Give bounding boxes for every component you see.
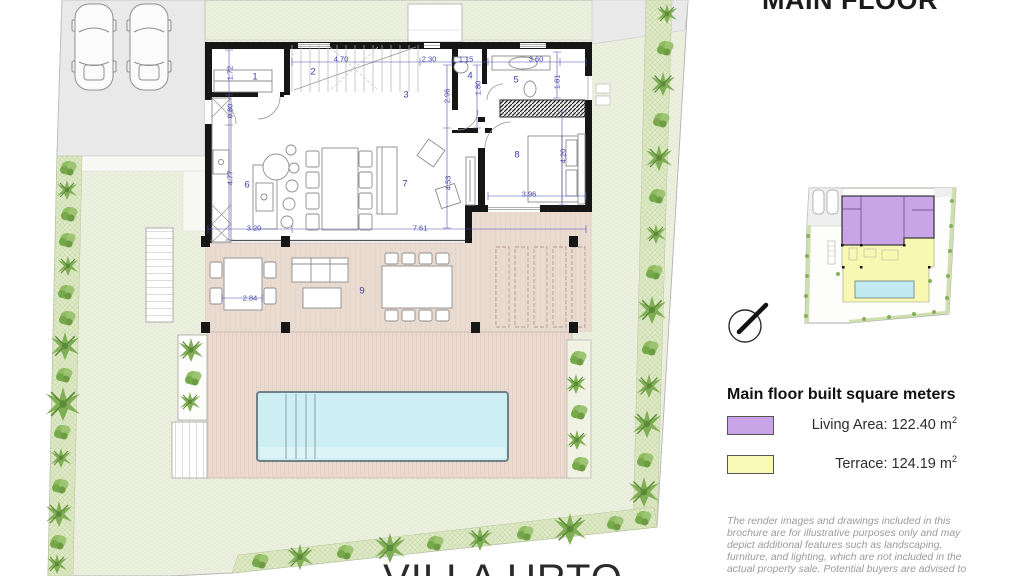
deck-stairs [172, 422, 207, 478]
legend-heading: Main floor built square meters [727, 386, 959, 404]
disclaimer-text: The render images and drawings included … [727, 516, 969, 576]
legend-label-terrace: Terrace: 124.19 m2 [835, 454, 957, 472]
dimension-label: 4.20 [559, 149, 568, 164]
dimension-label: 1.80 [474, 81, 483, 96]
legend-row-terrace: Terrace: 124.19 m2 [727, 453, 959, 482]
room-number: 4 [467, 71, 472, 82]
dimension-label: 1.81 [553, 75, 562, 90]
dimension-label: 3.60 [529, 55, 544, 64]
dimension-label: 2.96 [443, 89, 452, 104]
dimension-label: 1.72 [226, 66, 235, 81]
dimension-label: 3.96 [522, 190, 537, 199]
mini-plan [794, 186, 966, 331]
legend-swatch-living [727, 416, 774, 435]
floor-plan: 1 2 3 4 5 6 7 8 9 1.72 4.70 2.30 1.15 3.… [0, 0, 724, 576]
swimming-pool [257, 392, 508, 461]
room-number: 9 [359, 286, 364, 297]
external-stairs [146, 228, 173, 322]
car-icon [72, 4, 116, 90]
dimension-label: 3.20 [247, 224, 262, 233]
legend: Main floor built square meters Living Ar… [727, 386, 959, 482]
mini-living-highlight [842, 196, 934, 245]
legend-label-living: Living Area: 122.40 m2 [812, 415, 957, 433]
compass-icon [722, 298, 774, 352]
house [205, 4, 610, 243]
page-title: MAIN FLOOR [724, 0, 976, 16]
dimension-label: 2.84 [243, 294, 258, 303]
room-number: 3 [403, 90, 408, 101]
dimension-label: 1.15 [459, 55, 474, 64]
legend-row-living: Living Area: 122.40 m2 [727, 414, 959, 443]
room-number: 8 [514, 150, 519, 161]
brochure-page: 1 2 3 4 5 6 7 8 9 1.72 4.70 2.30 1.15 3.… [0, 0, 1024, 576]
room-number: 6 [244, 180, 249, 191]
dimension-label: 7.61 [413, 224, 428, 233]
villa-name: VILLA URTO [303, 557, 703, 576]
dimension-label: 4.53 [444, 176, 453, 191]
dimension-label: 4.70 [334, 55, 349, 64]
dimension-label: 0.80 [226, 104, 235, 119]
legend-swatch-terrace [727, 455, 774, 474]
room-number: 1 [252, 72, 257, 83]
room-number: 5 [513, 75, 518, 86]
car-icon [127, 4, 171, 90]
dimension-label: 4.77 [226, 171, 235, 186]
room-number: 7 [402, 179, 407, 190]
room-number: 2 [310, 67, 315, 78]
dimension-label: 2.30 [422, 55, 437, 64]
